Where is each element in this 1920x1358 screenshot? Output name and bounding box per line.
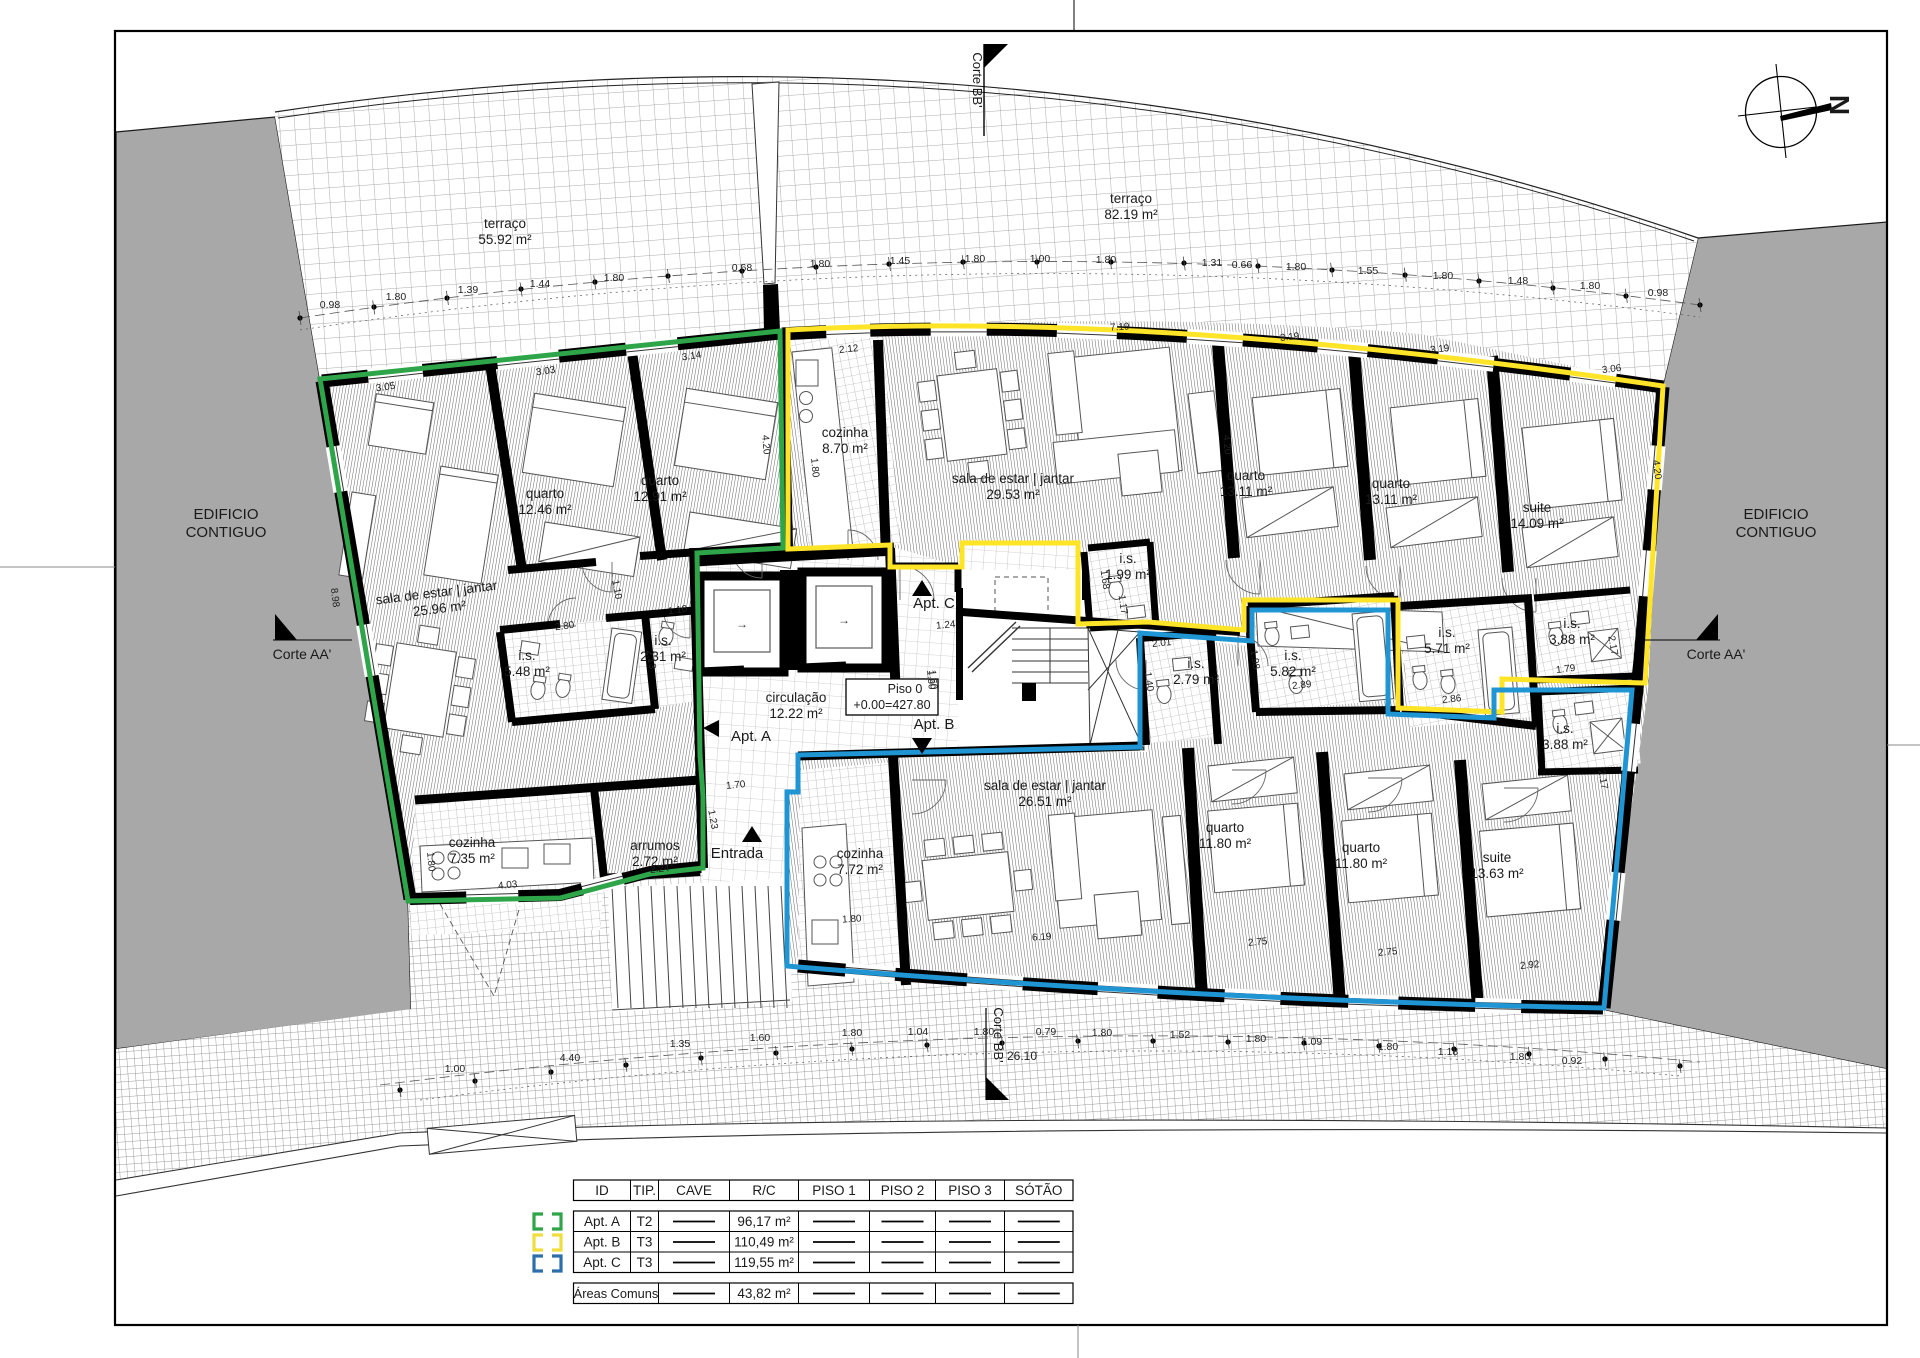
svg-text:Entrada: Entrada — [711, 845, 764, 862]
svg-text:Apt. C: Apt. C — [583, 1255, 621, 1270]
svg-text:suite: suite — [1483, 850, 1512, 865]
svg-text:N: N — [1824, 95, 1855, 115]
svg-text:quarto: quarto — [1342, 840, 1380, 855]
svg-text:1.44: 1.44 — [530, 278, 551, 290]
svg-text:i.s.: i.s. — [1187, 656, 1204, 671]
svg-text:82.19 m²: 82.19 m² — [1104, 207, 1158, 222]
svg-text:1.39: 1.39 — [458, 284, 479, 296]
svg-text:1.00: 1.00 — [445, 1063, 466, 1075]
svg-text:13.63 m²: 13.63 m² — [1470, 866, 1524, 881]
svg-text:5.48 m²: 5.48 m² — [504, 664, 550, 679]
svg-text:EDIFICIO: EDIFICIO — [193, 506, 258, 523]
svg-text:circulação: circulação — [766, 690, 827, 705]
svg-text:T3: T3 — [637, 1255, 653, 1270]
svg-text:1.80: 1.80 — [1096, 254, 1117, 266]
svg-text:5.82 m²: 5.82 m² — [1270, 664, 1316, 679]
svg-text:1.80: 1.80 — [1580, 280, 1601, 292]
svg-text:7.72 m²: 7.72 m² — [837, 862, 883, 877]
svg-text:5.71 m²: 5.71 m² — [1424, 641, 1470, 656]
svg-text:quarto: quarto — [1372, 476, 1410, 491]
svg-text:1.60: 1.60 — [750, 1032, 771, 1044]
svg-text:96,17 m²: 96,17 m² — [737, 1214, 791, 1229]
svg-text:1.70: 1.70 — [725, 779, 746, 792]
svg-text:1.80: 1.80 — [965, 253, 986, 265]
svg-text:1.80: 1.80 — [604, 272, 625, 284]
svg-text:0.98: 0.98 — [320, 299, 341, 311]
svg-text:3.88 m²: 3.88 m² — [1542, 737, 1588, 752]
svg-text:R/C: R/C — [752, 1183, 776, 1198]
svg-text:1.60: 1.60 — [926, 670, 939, 691]
svg-text:3.88 m²: 3.88 m² — [1549, 632, 1595, 647]
svg-text:Piso 0: Piso 0 — [888, 682, 923, 696]
svg-text:1.55: 1.55 — [1358, 265, 1379, 277]
svg-text:4.20: 4.20 — [759, 435, 772, 456]
svg-text:terraço: terraço — [484, 216, 526, 231]
svg-text:1.80: 1.80 — [842, 1027, 863, 1039]
svg-text:sala de estar | jantar: sala de estar | jantar — [952, 471, 1075, 486]
svg-text:7.35 m²: 7.35 m² — [449, 851, 495, 866]
svg-text:i.s.: i.s. — [1556, 721, 1573, 736]
svg-text:terraço: terraço — [1110, 191, 1152, 206]
svg-text:Apt. B: Apt. B — [584, 1235, 621, 1250]
svg-text:1.80: 1.80 — [424, 852, 437, 873]
svg-text:2.75: 2.75 — [1248, 936, 1269, 949]
svg-text:suite: suite — [1523, 500, 1552, 515]
svg-text:Apt. B: Apt. B — [914, 716, 955, 733]
svg-text:1.00: 1.00 — [1030, 253, 1051, 265]
svg-text:1.35: 1.35 — [670, 1038, 691, 1050]
svg-text:13.11 m²: 13.11 m² — [1220, 484, 1273, 499]
svg-text:Áreas Comuns: Áreas Comuns — [574, 1286, 659, 1301]
svg-text:1.80: 1.80 — [808, 458, 821, 479]
svg-text:13.11 m²: 13.11 m² — [1365, 492, 1418, 507]
svg-text:55.92 m²: 55.92 m² — [478, 232, 532, 247]
svg-text:1.80: 1.80 — [386, 291, 407, 303]
svg-text:i.s.: i.s. — [1119, 551, 1136, 566]
svg-text:1.80: 1.80 — [842, 913, 863, 925]
svg-text:1.24: 1.24 — [936, 619, 957, 632]
svg-text:Corte BB': Corte BB' — [970, 52, 985, 107]
svg-text:i.s.: i.s. — [1438, 625, 1455, 640]
svg-text:ID: ID — [595, 1183, 609, 1198]
svg-text:8.70 m²: 8.70 m² — [822, 441, 868, 456]
svg-text:cozinha: cozinha — [449, 835, 496, 850]
svg-text:1.80: 1.80 — [810, 258, 831, 270]
svg-text:PISO 3: PISO 3 — [948, 1183, 992, 1198]
svg-text:12.46 m²: 12.46 m² — [518, 502, 572, 517]
svg-text:1.80: 1.80 — [974, 1026, 995, 1038]
svg-text:PISO 1: PISO 1 — [812, 1183, 856, 1198]
svg-text:1.80: 1.80 — [1246, 1033, 1267, 1045]
svg-text:12.91 m²: 12.91 m² — [633, 489, 687, 504]
svg-text:2.01: 2.01 — [1151, 637, 1172, 650]
svg-text:Apt. C: Apt. C — [913, 595, 955, 612]
svg-text:Corte AA': Corte AA' — [273, 646, 332, 662]
svg-text:→: → — [736, 617, 748, 631]
svg-text:T2: T2 — [637, 1214, 653, 1229]
svg-text:0.92: 0.92 — [1562, 1055, 1583, 1067]
svg-text:Apt. A: Apt. A — [731, 728, 771, 745]
svg-text:TIP.: TIP. — [633, 1183, 656, 1198]
svg-text:3.19: 3.19 — [1279, 331, 1300, 344]
svg-text:+0.00=427.80: +0.00=427.80 — [853, 698, 930, 712]
svg-text:2.92: 2.92 — [1519, 959, 1540, 972]
svg-text:2.79 m²: 2.79 m² — [1173, 672, 1219, 687]
svg-text:1.45: 1.45 — [890, 255, 911, 267]
svg-text:i.s.: i.s. — [654, 633, 671, 648]
svg-text:2.12: 2.12 — [838, 343, 859, 356]
svg-text:26.51 m²: 26.51 m² — [1018, 794, 1072, 809]
svg-text:quarto: quarto — [1206, 820, 1244, 835]
svg-text:119,55 m²: 119,55 m² — [734, 1255, 794, 1270]
svg-text:2.75: 2.75 — [1378, 946, 1399, 959]
svg-text:CONTIGUO: CONTIGUO — [186, 524, 267, 541]
svg-text:CAVE: CAVE — [676, 1183, 712, 1198]
svg-text:2.89: 2.89 — [1291, 679, 1312, 692]
svg-text:cozinha: cozinha — [822, 425, 869, 440]
svg-text:i.s.: i.s. — [1563, 616, 1580, 631]
svg-text:2.24: 2.24 — [649, 863, 670, 876]
svg-text:4.20: 4.20 — [1220, 435, 1233, 456]
svg-text:1.80: 1.80 — [1092, 1027, 1113, 1039]
svg-text:1.52: 1.52 — [1170, 1029, 1191, 1041]
svg-text:1.04: 1.04 — [908, 1026, 929, 1038]
svg-text:i.s.: i.s. — [518, 648, 535, 663]
svg-text:cozinha: cozinha — [837, 846, 884, 861]
svg-text:11.80 m²: 11.80 m² — [1199, 836, 1252, 851]
svg-text:1.99 m²: 1.99 m² — [1105, 567, 1151, 582]
svg-text:11.80 m²: 11.80 m² — [1335, 856, 1388, 871]
svg-text:43,82 m²: 43,82 m² — [737, 1286, 791, 1301]
svg-text:4.03: 4.03 — [497, 879, 518, 892]
svg-text:0.98: 0.98 — [1648, 287, 1669, 299]
svg-text:1.80: 1.80 — [1433, 270, 1454, 282]
svg-text:14.09 m²: 14.09 m² — [1510, 516, 1564, 531]
svg-text:sala de estar | jantar: sala de estar | jantar — [984, 778, 1107, 793]
svg-text:CONTIGUO: CONTIGUO — [1736, 524, 1817, 541]
svg-text:110,49 m²: 110,49 m² — [734, 1235, 794, 1250]
svg-text:3.19: 3.19 — [1429, 343, 1450, 356]
svg-text:PISO 2: PISO 2 — [881, 1183, 925, 1198]
svg-text:i.s.: i.s. — [1284, 648, 1301, 663]
svg-text:T3: T3 — [637, 1235, 653, 1250]
svg-text:EDIFICIO: EDIFICIO — [1743, 506, 1808, 523]
svg-text:quarto: quarto — [641, 473, 679, 488]
svg-text:arrumos: arrumos — [630, 838, 680, 853]
svg-text:29.53 m²: 29.53 m² — [986, 487, 1040, 502]
svg-text:Corte AA': Corte AA' — [1687, 646, 1746, 662]
svg-text:Apt. A: Apt. A — [584, 1214, 620, 1229]
svg-text:→: → — [838, 613, 850, 627]
svg-text:6.19: 6.19 — [1032, 931, 1053, 943]
svg-text:quarto: quarto — [1227, 468, 1265, 483]
svg-text:2.86: 2.86 — [1441, 693, 1462, 706]
svg-text:4.40: 4.40 — [560, 1052, 581, 1064]
svg-text:7.19: 7.19 — [1110, 321, 1131, 333]
svg-text:0.79: 0.79 — [1036, 1026, 1057, 1038]
svg-text:quarto: quarto — [526, 486, 564, 501]
svg-text:SÓTÃO: SÓTÃO — [1015, 1183, 1062, 1198]
svg-text:0.66: 0.66 — [1232, 259, 1253, 271]
svg-text:1.31: 1.31 — [1202, 257, 1223, 269]
svg-text:12.22 m²: 12.22 m² — [769, 706, 823, 721]
svg-text:1.48: 1.48 — [1508, 275, 1529, 287]
svg-text:1.80: 1.80 — [1286, 261, 1307, 273]
svg-text:26.10: 26.10 — [1007, 1049, 1037, 1063]
